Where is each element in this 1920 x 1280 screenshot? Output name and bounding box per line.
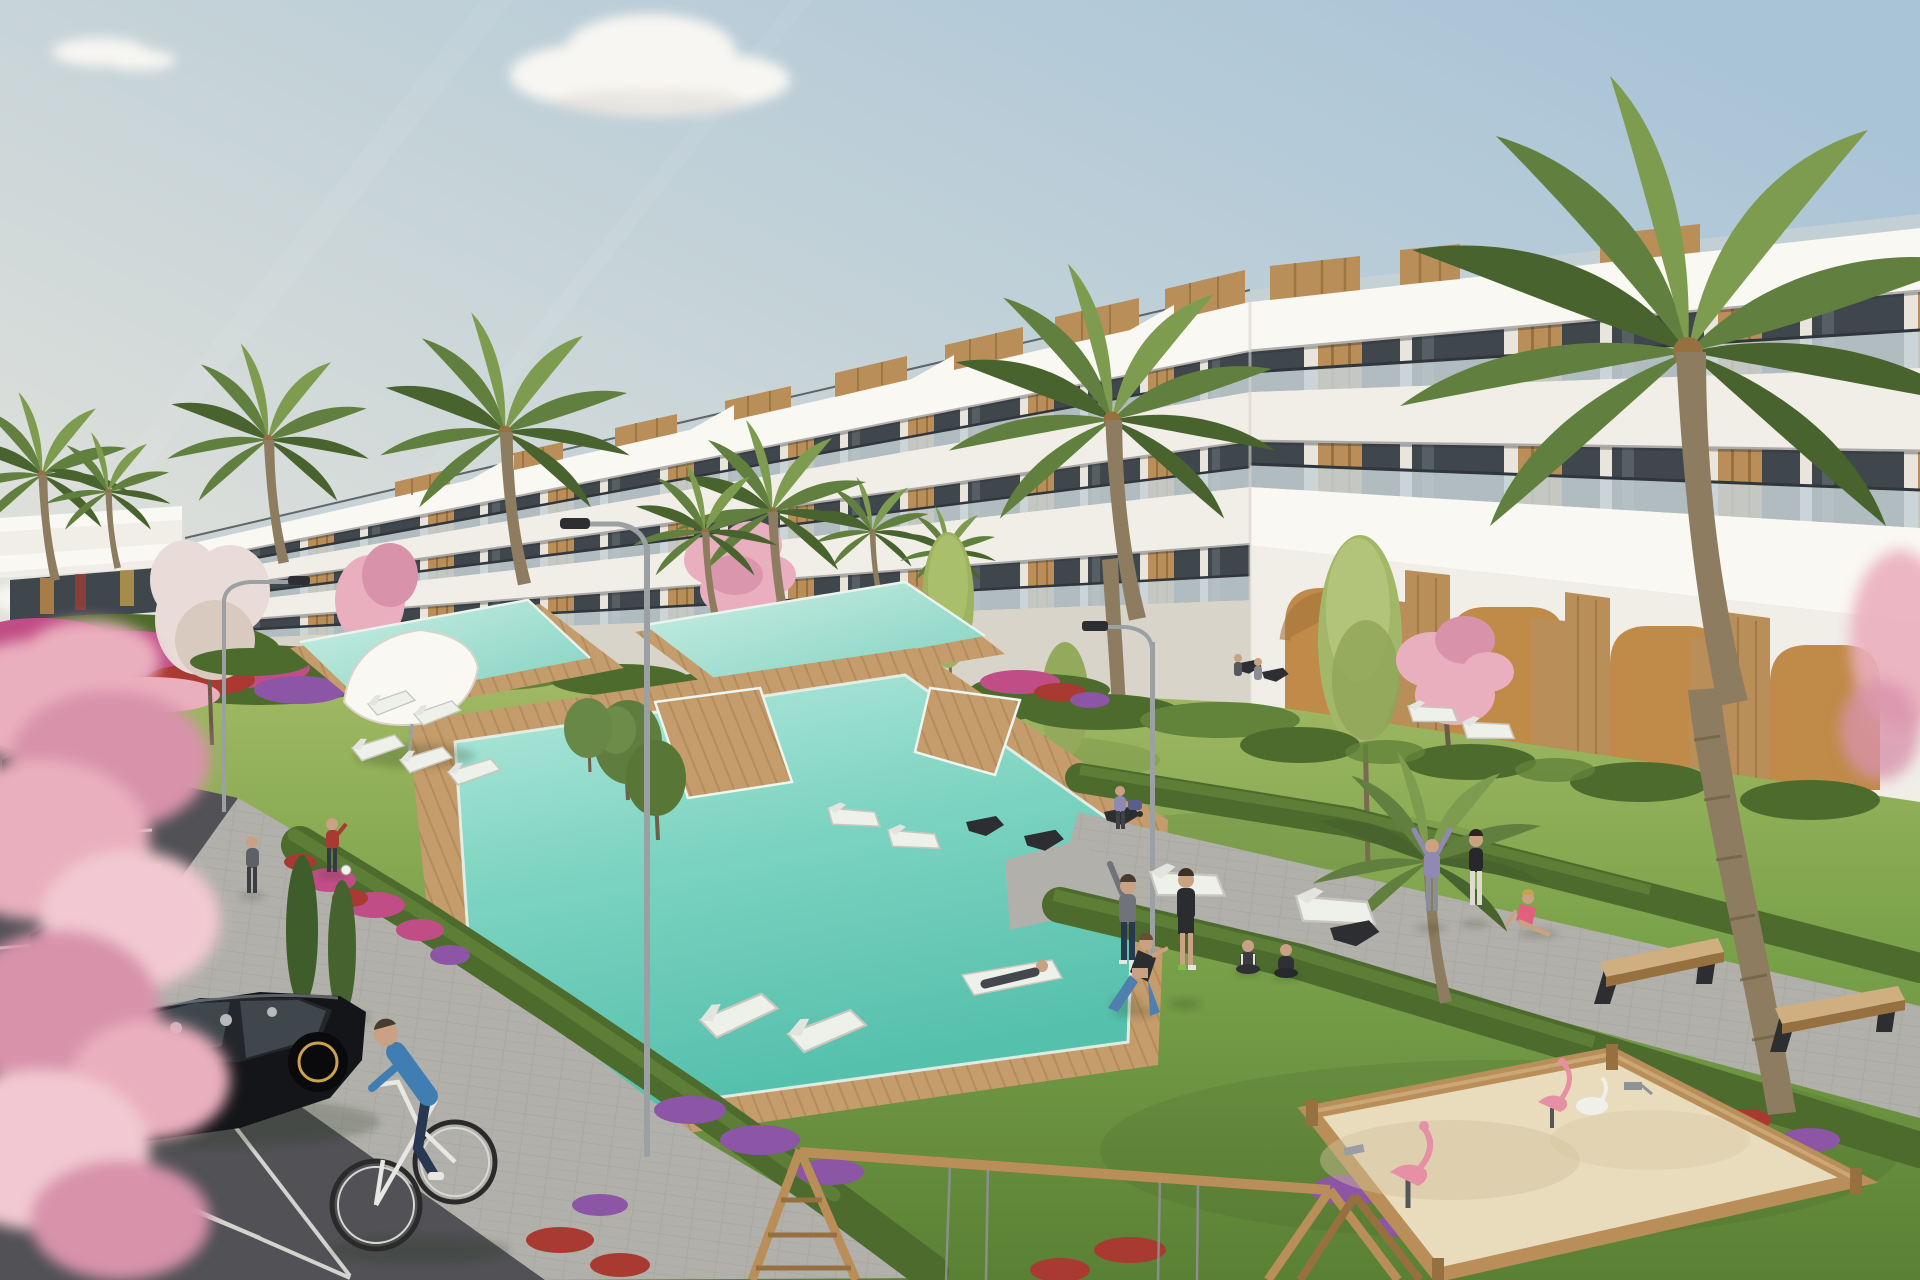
lamp-head [560, 518, 590, 529]
sand-shading [1550, 1110, 1750, 1170]
scene-render [0, 0, 1920, 1280]
corner-post [1606, 1044, 1618, 1070]
crossed-legs [1274, 968, 1298, 978]
render-canvas [0, 0, 1920, 1280]
distant-figure [1254, 658, 1262, 680]
blossom-right-edge [1840, 680, 1920, 780]
glass-reflection [75, 574, 86, 610]
crossed-legs [1236, 964, 1260, 974]
arch-wood-column [1531, 617, 1565, 760]
lamp-pole [222, 598, 226, 812]
seat-headrest [267, 1007, 277, 1017]
corner-post [1850, 1168, 1862, 1194]
stroller [1128, 800, 1142, 810]
soccer-ball [341, 865, 351, 875]
corner-post [1306, 1100, 1318, 1126]
seat-headrest [220, 1014, 232, 1026]
midriff [1132, 968, 1148, 978]
wood-pier [1565, 592, 1610, 775]
distant-figure [1234, 654, 1242, 676]
sneaker [1188, 965, 1196, 970]
lamp-head [1082, 621, 1108, 631]
wheel [288, 1032, 348, 1092]
sneaker [1178, 965, 1186, 970]
glass-reflection [40, 578, 54, 614]
shoe [428, 1172, 444, 1180]
glass-reflection [120, 570, 134, 606]
sand-shading [1320, 1120, 1580, 1200]
lamp-pole [1150, 642, 1155, 960]
lamp-head [288, 576, 310, 585]
corner-post [1432, 1258, 1444, 1280]
lamp-pole [644, 545, 650, 1157]
